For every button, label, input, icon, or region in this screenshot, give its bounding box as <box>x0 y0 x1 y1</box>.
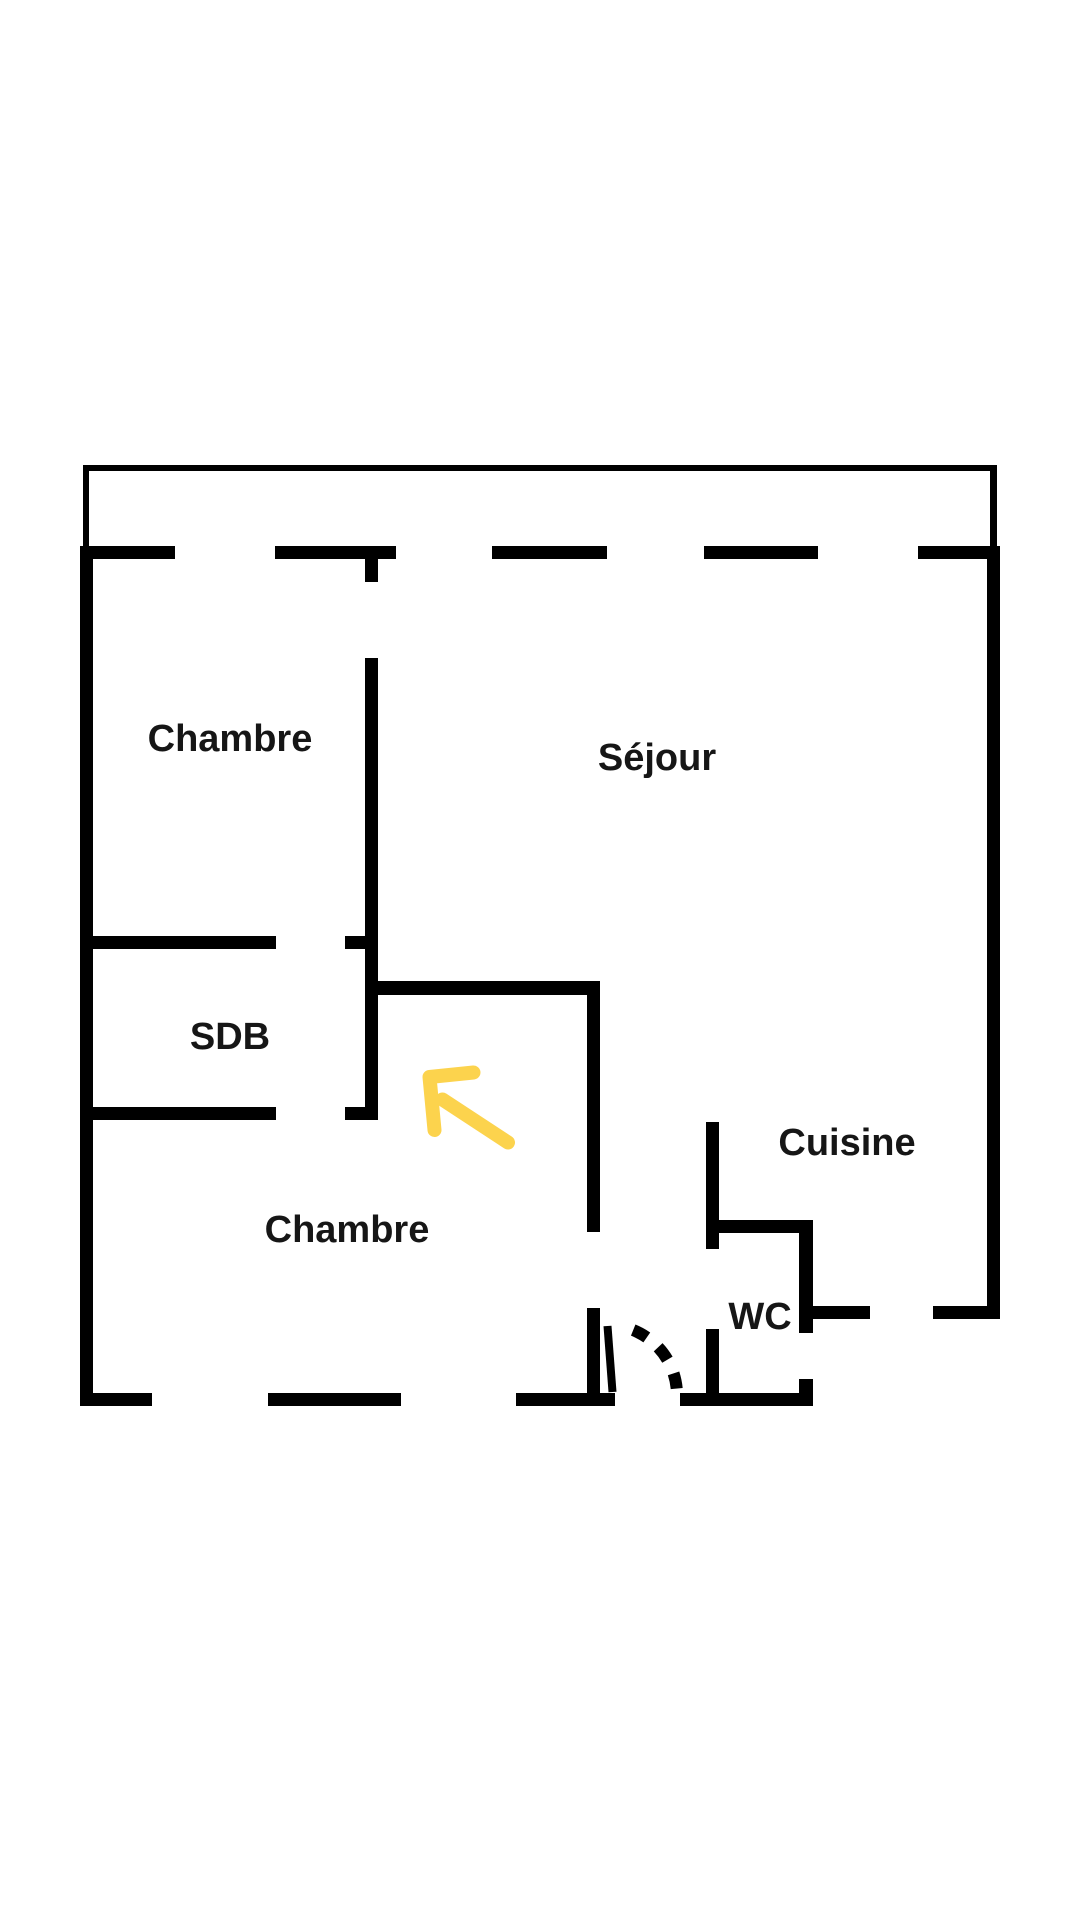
svg-text:Séjour: Séjour <box>598 737 716 779</box>
svg-text:Chambre: Chambre <box>265 1209 430 1251</box>
svg-text:SDB: SDB <box>190 1016 270 1058</box>
svg-text:Cuisine: Cuisine <box>778 1122 915 1164</box>
svg-text:WC: WC <box>728 1296 791 1338</box>
svg-text:Chambre: Chambre <box>148 718 313 760</box>
